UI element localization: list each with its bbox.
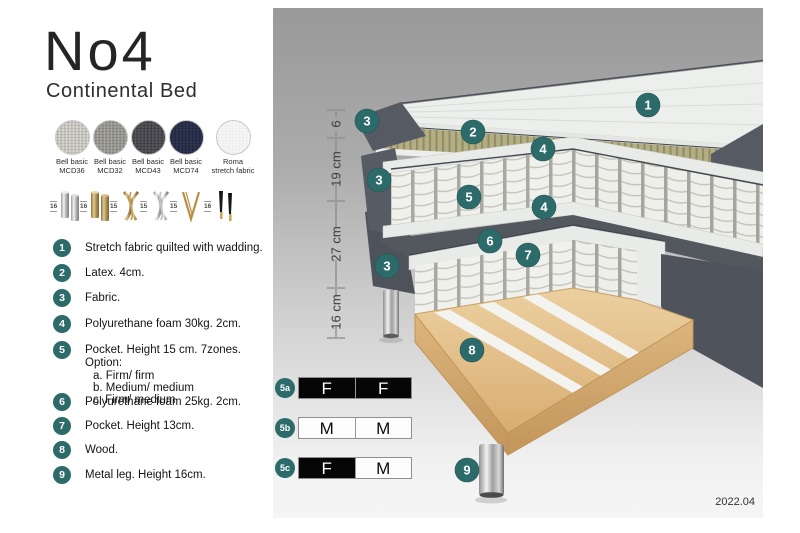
part-number-badge: 1 [53, 239, 71, 257]
part-number-badge: 5 [53, 341, 71, 359]
firmness-badge: 5a [275, 378, 295, 398]
leg-icon [178, 189, 204, 223]
fabric-swatch-label: Bell basicMCD74 [160, 158, 212, 175]
svg-text:8: 8 [468, 343, 475, 358]
product-sheet: No4 Continental Bed Bell basicMCD36Bell … [0, 0, 800, 533]
part-number-badge: 3 [53, 289, 71, 307]
svg-text:5: 5 [465, 190, 472, 205]
bed-diagram-panel: 6 19 cm 27 cm 16 cm 1 2 3 4 3 5 4 6 7 3 … [273, 8, 763, 518]
metal-leg-front [479, 444, 504, 496]
firmness-cell: M [299, 418, 355, 438]
callout-3-lower: 3 [375, 254, 399, 278]
part-sub-option: a. Firm/ firm [93, 370, 270, 382]
svg-text:4: 4 [540, 200, 548, 215]
part-number-badge: 8 [53, 441, 71, 459]
leg-icon [212, 189, 238, 223]
bed-cutaway-illustration: 6 19 cm 27 cm 16 cm 1 2 3 4 3 5 4 6 7 3 … [273, 8, 763, 518]
part-item-1: 1Stretch fabric quilted with wadding. [45, 239, 270, 255]
firmness-cell: F [299, 378, 355, 398]
callout-8: 8 [460, 338, 484, 362]
svg-text:7: 7 [524, 248, 531, 263]
part-description: Pocket. Height 13cm. [85, 417, 270, 433]
part-item-7: 7Pocket. Height 13cm. [45, 417, 270, 433]
firmness-box: FM [298, 457, 412, 479]
svg-text:3: 3 [383, 259, 390, 274]
fabric-swatch-disc [216, 120, 251, 155]
firmness-cell: F [299, 458, 355, 478]
firmness-cell: F [355, 378, 412, 398]
callout-3-middle: 3 [367, 168, 391, 192]
part-item-2: 2Latex. 4cm. [45, 264, 270, 280]
callout-2: 2 [461, 120, 485, 144]
fabric-swatch-disc [169, 120, 204, 155]
part-description: Pocket. Height 15 cm. 7zones. Option: [85, 341, 270, 370]
fabric-swatches: Bell basicMCD36Bell basicMCD32Bell basic… [0, 0, 273, 190]
leg-height-label: 16 [50, 201, 57, 212]
fabric-swatch: Bell basicMCD74 [160, 120, 212, 175]
part-description: Polyurethane foam 25kg. 2cm. [85, 393, 270, 409]
leg-option: 16 [204, 186, 238, 226]
part-number-badge: 7 [53, 417, 71, 435]
dim-label-lower: 16 cm [329, 294, 344, 329]
part-description: Fabric. [85, 289, 270, 305]
leg-height-label: 15 [140, 201, 147, 212]
svg-text:9: 9 [463, 463, 470, 478]
part-description: Stretch fabric quilted with wadding. [85, 239, 270, 255]
part-item-3: 3Fabric. [45, 289, 270, 305]
callout-9: 9 [455, 458, 479, 482]
part-description: Latex. 4cm. [85, 264, 270, 280]
part-item-6: 6Polyurethane foam 25kg. 2cm. [45, 393, 270, 409]
part-item-8: 8Wood. [45, 441, 270, 457]
leg-height-label: 16 [204, 201, 211, 212]
callout-4-lower: 4 [532, 195, 556, 219]
firmness-row-5b: 5bMM [275, 417, 412, 439]
part-item-9: 9Metal leg. Height 16cm. [45, 466, 270, 482]
callout-4-upper: 4 [531, 137, 555, 161]
part-number-badge: 4 [53, 315, 71, 333]
dim-label-top: 6 [329, 120, 344, 127]
base-layer [379, 215, 763, 504]
firmness-box: FF [298, 377, 412, 399]
svg-text:6: 6 [486, 234, 493, 249]
firmness-row-5a: 5aFF [275, 377, 412, 399]
part-description: Wood. [85, 441, 270, 457]
svg-text:3: 3 [363, 114, 370, 129]
part-number-badge: 9 [53, 466, 71, 484]
version-label: 2022.04 [715, 496, 755, 508]
firmness-row-5c: 5cFM [275, 457, 412, 479]
callout-6: 6 [478, 229, 502, 253]
firmness-cell: M [355, 458, 412, 478]
firmness-cell: M [355, 418, 412, 438]
callout-5: 5 [457, 185, 481, 209]
callout-3-upper: 3 [355, 109, 379, 133]
fabric-swatch-label: Romastretch fabric [207, 158, 259, 175]
svg-text:1: 1 [644, 98, 651, 113]
metal-leg-left [383, 290, 399, 336]
leg-height-label: 16 [80, 201, 87, 212]
parts-list: 1Stretch fabric quilted with wadding.2La… [45, 238, 270, 498]
part-description: Polyurethane foam 30kg. 2cm. [85, 315, 270, 331]
svg-text:4: 4 [539, 142, 547, 157]
firmness-badge: 5b [275, 418, 295, 438]
firmness-badge: 5c [275, 458, 295, 478]
leg-option: 15 [170, 186, 204, 226]
part-item-4: 4Polyurethane foam 30kg. 2cm. [45, 315, 270, 331]
firmness-box: MM [298, 417, 412, 439]
part-number-badge: 2 [53, 264, 71, 282]
part-number-badge: 6 [53, 393, 71, 411]
leg-height-label: 15 [170, 201, 177, 212]
dim-label-middle: 27 cm [329, 226, 344, 261]
callout-7: 7 [516, 243, 540, 267]
callout-1: 1 [636, 93, 660, 117]
fabric-swatch: Romastretch fabric [207, 120, 259, 175]
leg-height-label: 15 [110, 201, 117, 212]
dim-label-upper: 19 cm [329, 151, 344, 186]
part-description: Metal leg. Height 16cm. [85, 466, 270, 482]
svg-text:3: 3 [375, 173, 382, 188]
svg-text:2: 2 [469, 125, 476, 140]
